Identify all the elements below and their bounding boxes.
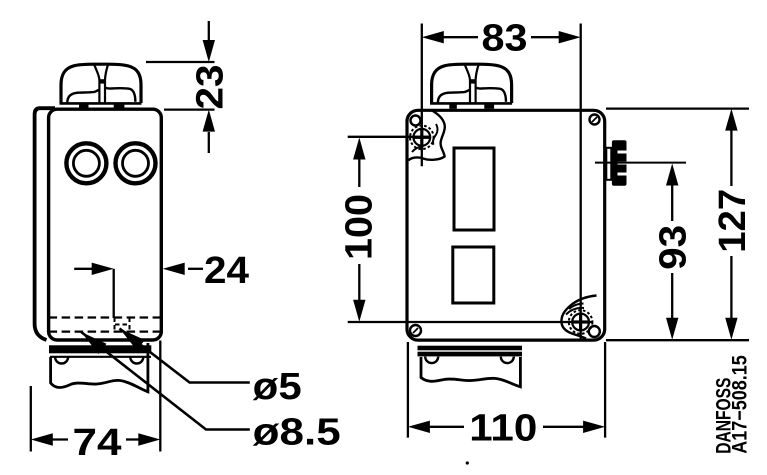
svg-text:ø8.5: ø8.5 [253, 412, 341, 454]
svg-text:74: 74 [73, 422, 122, 464]
svg-text:24: 24 [204, 250, 249, 292]
svg-text:ø5: ø5 [253, 366, 302, 408]
svg-text:83: 83 [482, 18, 528, 60]
svg-text:A17−508.15: A17−508.15 [728, 355, 751, 454]
svg-text:93: 93 [653, 225, 695, 270]
svg-text:100: 100 [339, 194, 381, 260]
svg-text:23: 23 [189, 65, 231, 110]
svg-text:110: 110 [469, 407, 537, 449]
svg-text:127: 127 [712, 189, 754, 253]
